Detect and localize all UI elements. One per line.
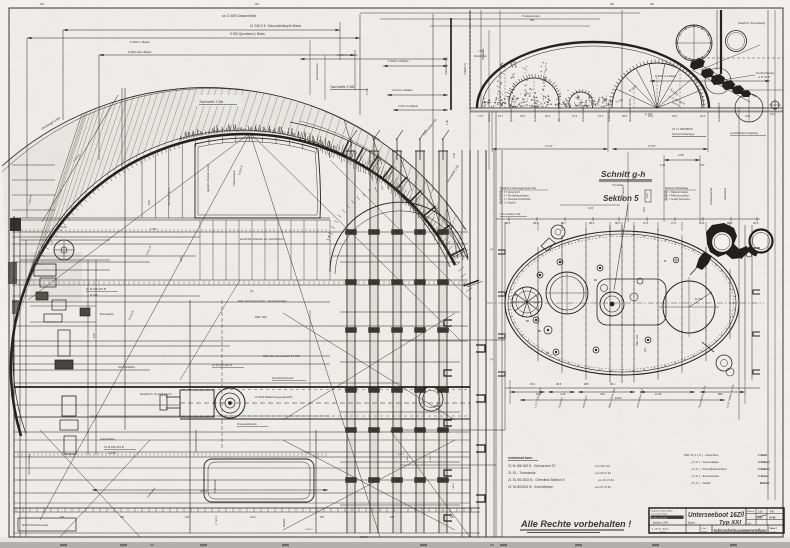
svg-text:4.68: 4.68 bbox=[678, 153, 684, 157]
svg-text:1.717: 1.717 bbox=[365, 88, 369, 95]
svg-text:6.300 ü. Basis: 6.300 ü. Basis bbox=[130, 40, 150, 44]
svg-text:6.00: 6.00 bbox=[147, 199, 151, 205]
svg-text:Bedarf f.d.Seekriegsmarine St: Bedarf f.d.Seekriegsmarine Stk bbox=[500, 186, 537, 190]
svg-text:36.9: 36.9 bbox=[699, 221, 705, 225]
svg-text:Zentrale oben: Zentrale oben bbox=[167, 187, 171, 205]
svg-text:(+): (+) bbox=[490, 247, 493, 251]
svg-text:4.90-12: 4.90-12 bbox=[305, 529, 313, 531]
svg-text:Anschlußkabel: Anschlußkabel bbox=[118, 365, 135, 369]
svg-text:36.8: 36.8 bbox=[753, 221, 759, 225]
svg-text:D.148: D.148 bbox=[108, 451, 116, 455]
svg-text:Tischl.: Tischl. bbox=[660, 532, 666, 534]
svg-text:2 Blätter: 2 Blätter bbox=[758, 467, 771, 471]
svg-text:Ballast: Ballast bbox=[282, 519, 286, 527]
svg-text:36.9: 36.9 bbox=[648, 114, 654, 118]
svg-text:Trockenbunker: Trockenbunker bbox=[522, 14, 540, 18]
svg-text:Bremskabel: Bremskabel bbox=[100, 312, 114, 316]
svg-text:Vorderkante: Vorderkante bbox=[608, 108, 611, 122]
svg-text:Sehrohr: Sehrohr bbox=[488, 113, 491, 122]
svg-text:21 M 188 251 B: 21 M 188 251 B bbox=[104, 445, 124, 449]
svg-text:Deckteil Drehbügel: Deckteil Drehbügel bbox=[28, 453, 31, 475]
svg-text:34.2: 34.2 bbox=[700, 114, 706, 118]
svg-text:Hauptamt Kriegsschiffbau: Hauptamt Kriegsschiffbau bbox=[651, 510, 673, 513]
svg-text:2.270 ü.a Basis: 2.270 ü.a Basis bbox=[398, 104, 418, 108]
svg-text:2 = Spanth: 2 = Spanth bbox=[504, 202, 516, 205]
svg-text:Seilwind f. Sammelantg: Seilwind f. Sammelantg bbox=[738, 21, 766, 25]
svg-text:1.40: 1.40 bbox=[445, 119, 449, 125]
svg-text:21 M 188 262 B - Schnorchel: 21 M 188 262 B - Schnorchel ZY bbox=[508, 464, 557, 468]
svg-text:11 240 O.K. Schnorchelkopf: 11 240 O.K. Schnorchelkopf ü.Basis bbox=[250, 24, 301, 28]
svg-text:2 ( K ): 2 ( K ) bbox=[771, 531, 777, 533]
svg-text:2170: 2170 bbox=[250, 516, 256, 519]
svg-text:„ 5 ( K ) - Detail: „ 5 ( K ) - Detail bbox=[690, 481, 711, 485]
svg-text:16.7: 16.7 bbox=[498, 114, 504, 118]
svg-text:4.40: 4.40 bbox=[660, 163, 666, 167]
svg-text:T.Oberk.(?): T.Oberk.(?) bbox=[464, 63, 467, 75]
svg-text:389: 389 bbox=[584, 382, 589, 386]
svg-text:IX: IX bbox=[594, 278, 597, 282]
svg-text:Einschwimmen: Einschwimmen bbox=[316, 63, 319, 80]
svg-text:R.760: R.760 bbox=[695, 297, 703, 301]
svg-text:ersetzend bzw.:: ersetzend bzw.: bbox=[508, 456, 533, 460]
svg-text:Schnorchelanlage: Schnorchelanlage bbox=[672, 132, 695, 136]
svg-text:ca 17.600 Gesamthöhe: ca 17.600 Gesamthöhe bbox=[222, 14, 256, 18]
svg-text:—: — bbox=[749, 517, 751, 519]
svg-text:9.760 Querdeck ü. Basis: 9.760 Querdeck ü. Basis bbox=[230, 32, 265, 36]
svg-text:von 23 IV 43: von 23 IV 43 bbox=[595, 471, 611, 475]
svg-text:11.345: 11.345 bbox=[360, 535, 368, 539]
svg-text:2 Blätter: 2 Blätter bbox=[758, 460, 771, 464]
svg-text:Maßstab: Maßstab bbox=[747, 510, 754, 513]
svg-text:Kabelräume: Kabelräume bbox=[232, 170, 236, 186]
svg-text:( 7 am ): ( 7 am ) bbox=[214, 516, 218, 525]
svg-text:(gekerbt Zentrale unten): (gekerbt Zentrale unten) bbox=[206, 164, 210, 192]
svg-text:amtlicher Kabuke am Schiffsbo: amtlicher Kabuke am Schiffsboot bbox=[240, 237, 284, 241]
svg-text:Typ XXI: Typ XXI bbox=[719, 520, 741, 526]
svg-text:245: 245 bbox=[60, 516, 65, 519]
svg-text:37.3: 37.3 bbox=[572, 114, 578, 118]
svg-text:Treibölzelle: Treibölzelle bbox=[213, 479, 217, 493]
svg-text:38.0: 38.0 bbox=[615, 221, 621, 225]
svg-text:Blatt 2: Blatt 2 bbox=[770, 527, 777, 530]
svg-text:(44): (44) bbox=[644, 348, 647, 352]
svg-text:IV: IV bbox=[526, 319, 529, 323]
svg-text:Plan Nr 1 ( K ) - Ansichte: Plan Nr 1 ( K ) - Ansichten bbox=[684, 453, 719, 457]
svg-text:Presseleitraum: Presseleitraum bbox=[237, 422, 258, 426]
svg-text:21 71 188 868 B: 21 71 188 868 B bbox=[672, 127, 693, 131]
svg-text:1 mach.: 1 mach. bbox=[701, 531, 708, 533]
svg-text:4„- Werke - Blätter: 4„- Werke - Blätter bbox=[652, 528, 669, 531]
svg-text:36.4: 36.4 bbox=[545, 114, 551, 118]
svg-text:Schnitt g-h: Schnitt g-h bbox=[601, 169, 645, 179]
svg-text:6.900 über Basis: 6.900 über Basis bbox=[128, 50, 152, 54]
svg-text:III: III bbox=[538, 329, 541, 333]
svg-text:Tauchzelle 3 Stb: Tauchzelle 3 Stb bbox=[330, 85, 354, 89]
svg-text:1:10: 1:10 bbox=[758, 512, 763, 514]
svg-text:1 Kopf: 1 Kopf bbox=[701, 528, 707, 530]
svg-text:IX: IX bbox=[514, 293, 517, 297]
svg-text:36.9: 36.9 bbox=[672, 114, 678, 118]
svg-text:2473: 2473 bbox=[200, 489, 207, 493]
svg-text:Achterkante 38.700: Achterkante 38.700 bbox=[534, 100, 537, 122]
svg-text:Unterseeboot 16Z/l: Unterseeboot 16Z/l bbox=[688, 510, 745, 519]
svg-text:„ 4 ( K ) - Exerzierplan: „ 4 ( K ) - Exerzierplan bbox=[690, 474, 720, 478]
svg-text:Schnorchelzusammenstellung: Schnorchelzusammenstellung bbox=[714, 528, 767, 534]
svg-text:Mitte Turm 37.740: Mitte Turm 37.740 bbox=[558, 101, 561, 122]
svg-text:Zu M.B Mallast Gegengewicht: Zu M.B Mallast Gegengewicht bbox=[255, 395, 293, 399]
svg-text:2.400 ü.a Basis: 2.400 ü.a Basis bbox=[388, 59, 409, 63]
svg-text:Mille Sehrohrschacht - Sparric: Mille Sehrohrschacht - Sparrichertafel bbox=[238, 299, 287, 303]
svg-text:2.210 ü.a Basis: 2.210 ü.a Basis bbox=[392, 88, 413, 92]
svg-text:445: 445 bbox=[600, 392, 605, 396]
svg-text:Blätter: Blätter bbox=[760, 481, 770, 485]
svg-text:38.9: 38.9 bbox=[589, 221, 595, 225]
svg-text:( 2k ): ( 2k ) bbox=[398, 453, 404, 456]
svg-text:von 21 IV 44: von 21 IV 44 bbox=[598, 478, 614, 482]
svg-text:4.18: 4.18 bbox=[560, 392, 566, 396]
svg-text:14.5: 14.5 bbox=[645, 192, 649, 198]
svg-text:21 M 188 267 B: 21 M 188 267 B bbox=[86, 287, 106, 291]
svg-text:Ankaufkabel: Ankaufkabel bbox=[100, 437, 115, 441]
svg-text:Bauart: Bauart bbox=[688, 522, 695, 525]
svg-text:17,97: 17,97 bbox=[648, 144, 656, 148]
svg-text:2 Stube: 2 Stube bbox=[758, 474, 769, 478]
svg-text:4.40: 4.40 bbox=[452, 152, 456, 158]
svg-text:9.400 ü.a Basis: 9.400 ü.a Basis bbox=[655, 74, 677, 78]
svg-text:A4 98: A4 98 bbox=[769, 517, 776, 520]
svg-text:6.00: 6.00 bbox=[92, 332, 96, 338]
svg-text:(+): (+) bbox=[490, 357, 493, 361]
svg-text:21 SL - Turmdecke: 21 SL - Turmdecke bbox=[508, 471, 536, 475]
svg-text:Pressluftschrank: Pressluftschrank bbox=[272, 376, 294, 380]
svg-text:Alle Rechte vorbehalten !: Alle Rechte vorbehalten ! bbox=[520, 519, 631, 529]
svg-text:Spantentiefe: Spantentiefe bbox=[510, 107, 513, 122]
svg-text:37.6: 37.6 bbox=[643, 221, 649, 225]
svg-text:38.8: 38.8 bbox=[556, 382, 562, 386]
svg-text:(4): (4) bbox=[327, 235, 331, 238]
svg-text:und amtliche Signal: und amtliche Signal bbox=[651, 513, 668, 516]
svg-text:X: X bbox=[664, 259, 666, 263]
svg-text:455: 455 bbox=[320, 516, 325, 519]
svg-text:Stb: Stb bbox=[530, 18, 535, 22]
svg-text:1.140-7: 1.140-7 bbox=[453, 482, 455, 490]
svg-text:Schlüssellöcher: Schlüssellöcher bbox=[710, 187, 713, 205]
svg-text:420: 420 bbox=[185, 516, 190, 519]
svg-text:Restblech "Zu M.B Abd.2": Restblech "Zu M.B Abd.2" bbox=[140, 392, 172, 396]
svg-text:Bedarf je Beistlänge: Bedarf je Beistlänge bbox=[665, 186, 689, 190]
svg-text:Mitte Luke: Mitte Luke bbox=[636, 334, 639, 346]
svg-text:(4): (4) bbox=[250, 289, 253, 293]
svg-text:17.86: 17.86 bbox=[150, 227, 157, 231]
svg-text:1 Blatt: 1 Blatt bbox=[758, 453, 767, 457]
svg-text:= beidsg Schrauben: = beidsg Schrauben bbox=[669, 198, 691, 201]
svg-text:17.5: 17.5 bbox=[478, 114, 484, 118]
svg-text:Turm Außen Stb: Turm Außen Stb bbox=[500, 212, 521, 216]
svg-text:260: 260 bbox=[450, 516, 455, 519]
svg-text:Mille Sehrohrschacht 34.700: Mille Sehrohrschacht 34.700 bbox=[263, 354, 300, 358]
svg-text:Turmluke: Turmluke bbox=[612, 183, 624, 187]
svg-text:mit dgg. Zusammst.: mit dgg. Zusammst. bbox=[651, 516, 668, 519]
svg-text:Hauptdeck: Hauptdeck bbox=[482, 48, 485, 60]
svg-text:767: 767 bbox=[700, 163, 705, 167]
svg-text:38.1: 38.1 bbox=[610, 382, 616, 386]
svg-text:„ 2 ( K ) - Generalplan: „ 2 ( K ) - Generalplan bbox=[690, 460, 719, 464]
svg-text:von 27 VI 43: von 27 VI 43 bbox=[595, 485, 611, 489]
svg-text:gez.: gez. bbox=[748, 523, 752, 525]
svg-text:35.2: 35.2 bbox=[530, 382, 536, 386]
svg-text:Schanzkleid 34.2: Schanzkleid 34.2 bbox=[718, 102, 721, 122]
svg-text:„ 3 ( K ) - Rumpfplansich: „ 3 ( K ) - Rumpfplansichten bbox=[690, 467, 727, 471]
svg-text:21 SL 55.3002 B - Oberdeck: 21 SL 55.3002 B - Oberdeck Sektion 5 bbox=[508, 478, 564, 482]
svg-text:34.2: 34.2 bbox=[745, 114, 751, 118]
svg-text:37.2: 37.2 bbox=[598, 114, 604, 118]
svg-text:3.50: 3.50 bbox=[179, 256, 183, 262]
svg-text:14.5: 14.5 bbox=[588, 206, 594, 210]
svg-text:38.8: 38.8 bbox=[505, 221, 511, 225]
svg-text:21 SL 803301 B - Exerzierpla: 21 SL 803301 B - Exerzierplan bbox=[508, 485, 553, 489]
svg-text:Mille Takt: Mille Takt bbox=[255, 315, 267, 319]
svg-text:4.90-12: 4.90-12 bbox=[305, 452, 313, 454]
svg-text:11.35: 11.35 bbox=[655, 392, 662, 396]
svg-text:1.140-7: 1.140-7 bbox=[407, 454, 409, 462]
svg-text:Hubschacht 34.2: Hubschacht 34.2 bbox=[445, 56, 448, 75]
svg-text:Ausf.Gestell: Ausf.Gestell bbox=[622, 186, 625, 200]
svg-text:VI: VI bbox=[546, 351, 549, 355]
svg-text:Baujahre 1943: Baujahre 1943 bbox=[653, 522, 669, 525]
svg-text:Durchbl.Stander: Durchbl.Stander bbox=[756, 72, 774, 75]
svg-text:34.6: 34.6 bbox=[643, 207, 646, 212]
svg-text:Stützenkontur 38.370: Stützenkontur 38.370 bbox=[629, 98, 632, 122]
svg-text:D.148: D.148 bbox=[90, 293, 98, 297]
svg-text:10.00: 10.00 bbox=[60, 225, 67, 229]
svg-text:16.6: 16.6 bbox=[520, 114, 526, 118]
svg-text:Drucklörper: Drucklörper bbox=[474, 55, 487, 58]
svg-text:Spt 34.35 Rohrausweid: Spt 34.35 Rohrausweid bbox=[22, 524, 49, 527]
svg-text:9.400 ü.a Basis: 9.400 ü.a Basis bbox=[337, 53, 358, 57]
svg-text:Räellstand: Räellstand bbox=[724, 188, 727, 200]
svg-text:17,97: 17,97 bbox=[545, 144, 553, 148]
svg-text:verschiebbare Kupplung: verschiebbare Kupplung bbox=[730, 131, 759, 135]
svg-text:1840: 1840 bbox=[615, 396, 622, 400]
svg-text:36.8: 36.8 bbox=[622, 114, 628, 118]
svg-text:34.2: 34.2 bbox=[770, 112, 776, 116]
svg-text:von 18 V 43: von 18 V 43 bbox=[595, 464, 610, 468]
svg-text:37.2: 37.2 bbox=[671, 221, 677, 225]
svg-text:800: 800 bbox=[718, 392, 723, 396]
svg-text:4 B: 4 B bbox=[770, 511, 774, 514]
svg-text:Schnorchelluke: Schnorchelluke bbox=[582, 104, 585, 122]
svg-text:1.140-7: 1.140-7 bbox=[430, 454, 432, 462]
